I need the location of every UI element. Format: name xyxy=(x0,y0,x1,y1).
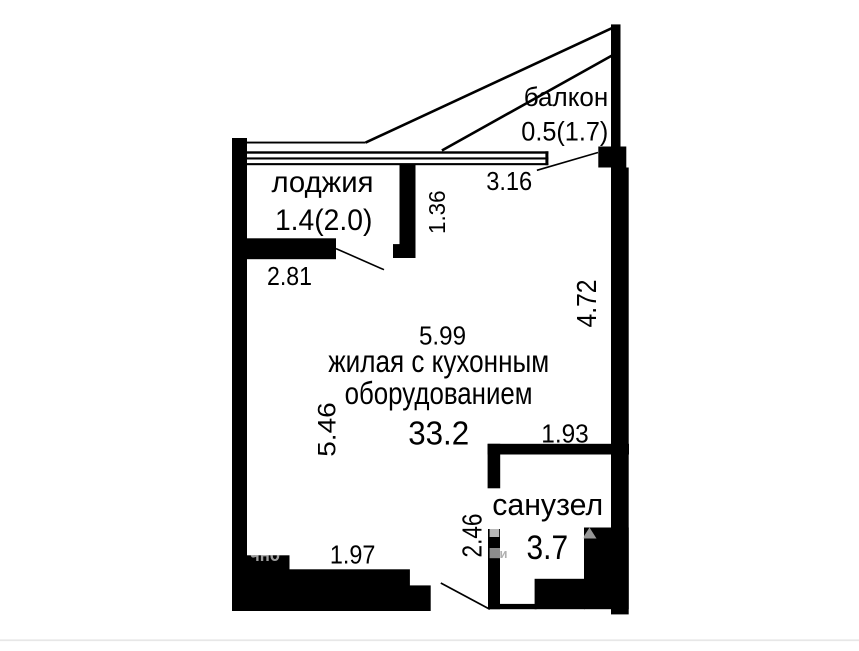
svg-text:3.16: 3.16 xyxy=(486,166,532,196)
svg-text:балкон: балкон xyxy=(524,82,609,112)
svg-text:33.2: 33.2 xyxy=(408,415,469,452)
svg-text:санузел: санузел xyxy=(492,487,603,522)
svg-text:1.4(2.0): 1.4(2.0) xyxy=(275,204,373,237)
svg-text:4.72: 4.72 xyxy=(571,280,602,328)
svg-text:5.46: 5.46 xyxy=(314,402,342,457)
svg-text:1.97: 1.97 xyxy=(330,540,376,570)
svg-text:1.93: 1.93 xyxy=(541,418,589,448)
svg-text:лоджия: лоджия xyxy=(272,166,374,199)
svg-text:0.5(1.7): 0.5(1.7) xyxy=(521,117,608,147)
svg-text:2.46: 2.46 xyxy=(457,514,488,558)
svg-text:жилая с кухонным: жилая с кухонным xyxy=(328,343,549,379)
svg-text:1.36: 1.36 xyxy=(424,190,450,234)
svg-text:оборудованием: оборудованием xyxy=(345,375,533,411)
svg-text:3.7: 3.7 xyxy=(527,529,569,567)
svg-text:и: и xyxy=(500,546,508,561)
svg-text:2.81: 2.81 xyxy=(267,261,312,291)
